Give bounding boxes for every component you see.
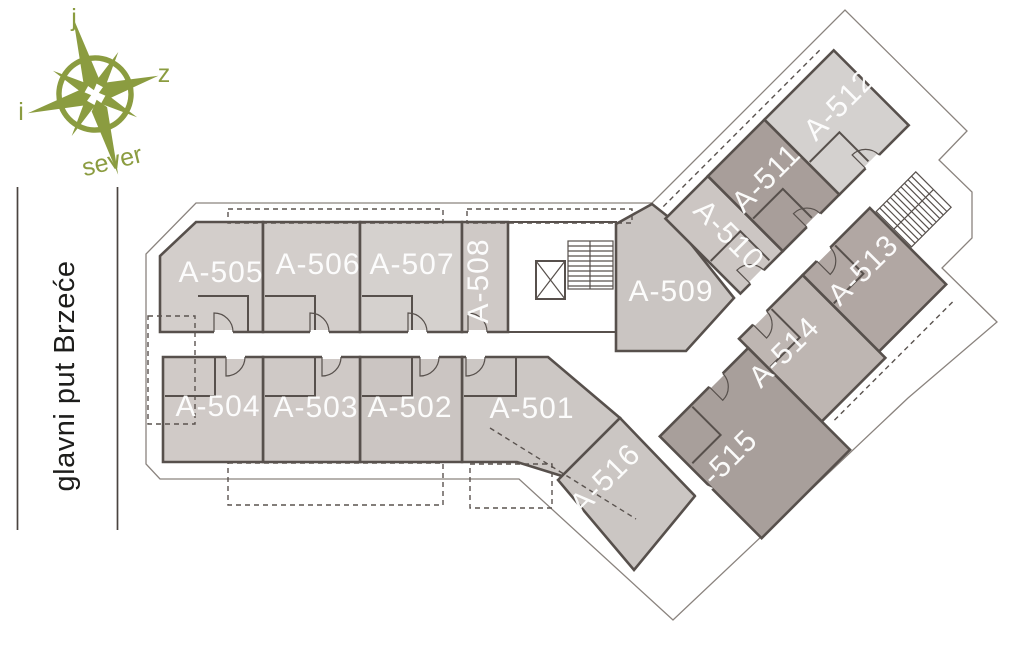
room-label-A-506: A-506 — [275, 248, 360, 281]
room-label-A-501: A-501 — [489, 392, 574, 425]
elevator-x-icon — [536, 261, 565, 299]
compass-rose-icon: j z i sever — [6, 0, 182, 194]
compass-left-letter: i — [18, 98, 24, 126]
room-label-A-507: A-507 — [369, 248, 454, 281]
floorplan-page: A-501A-502A-503A-504A-505A-506A-507A-508… — [0, 0, 1027, 671]
main-staircase — [568, 241, 613, 289]
compass-right-letter: z — [158, 60, 171, 88]
floorplan-svg: A-501A-502A-503A-504A-505A-506A-507A-508… — [0, 0, 1027, 671]
room-label-A-508: A-508 — [462, 238, 495, 323]
street-name-label: glavni put Brzeće — [49, 261, 81, 492]
room-label-A-509: A-509 — [628, 275, 713, 308]
compass-ring — [50, 49, 139, 138]
room-label-A-504: A-504 — [175, 390, 260, 423]
room-label-A-505: A-505 — [178, 256, 263, 289]
compass-south-label: sever — [79, 140, 145, 182]
room-label-A-502: A-502 — [367, 391, 452, 424]
core-walls — [508, 222, 616, 332]
compass-top-letter: j — [70, 4, 77, 32]
street: glavni put Brzeće — [18, 187, 118, 530]
room-label-A-503: A-503 — [273, 391, 358, 424]
service-core — [508, 222, 616, 332]
